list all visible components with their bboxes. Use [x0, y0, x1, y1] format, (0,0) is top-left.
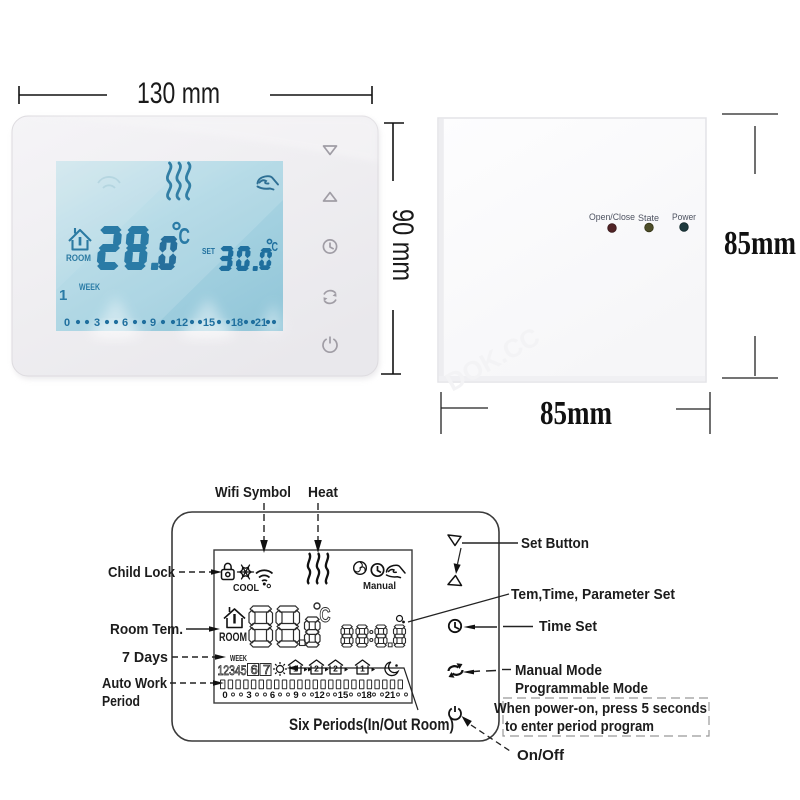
svg-text:State: State [638, 213, 659, 224]
svg-text:3: 3 [94, 317, 100, 329]
svg-text:6: 6 [251, 662, 258, 677]
svg-text:7: 7 [263, 662, 270, 677]
svg-text:15: 15 [338, 690, 349, 701]
svg-text:Manual: Manual [363, 580, 396, 592]
svg-text:C: C [320, 604, 331, 627]
svg-text:0: 0 [222, 690, 227, 701]
svg-text:Heat: Heat [308, 484, 338, 501]
svg-text:SET: SET [202, 247, 215, 256]
svg-text:130 mm: 130 mm [137, 77, 220, 110]
svg-text:Programmable Mode: Programmable Mode [515, 680, 648, 697]
svg-text:ROOM: ROOM [66, 253, 91, 264]
svg-text:6: 6 [122, 317, 128, 329]
svg-text:9: 9 [150, 317, 156, 329]
svg-text:On/Off: On/Off [517, 747, 565, 764]
svg-text:Six Periods(In/Out Room): Six Periods(In/Out Room) [289, 716, 454, 734]
svg-text:1: 1 [360, 664, 365, 674]
svg-text:Time Set: Time Set [539, 618, 597, 635]
svg-text:1: 1 [59, 287, 67, 304]
svg-text:6: 6 [270, 690, 275, 701]
svg-text:18: 18 [361, 690, 372, 701]
svg-text:90 mm: 90 mm [386, 209, 419, 281]
svg-text:12345: 12345 [218, 662, 247, 678]
svg-text:COOL: COOL [233, 582, 259, 594]
svg-text:9: 9 [293, 690, 298, 701]
svg-text:WEEK: WEEK [79, 282, 100, 292]
svg-text:Set Button: Set Button [521, 535, 589, 552]
svg-text:Power: Power [672, 212, 696, 223]
svg-text:7 Days: 7 Days [122, 649, 168, 666]
svg-text:21: 21 [385, 690, 396, 701]
svg-text:C: C [179, 223, 191, 249]
svg-text:0: 0 [64, 317, 70, 329]
svg-text:Manual Mode: Manual Mode [515, 662, 602, 679]
svg-text:Auto Work: Auto Work [102, 675, 168, 692]
svg-text:21: 21 [255, 317, 267, 329]
svg-text:When power-on, press 5 seconds: When power-on, press 5 seconds [494, 700, 707, 717]
svg-text:18: 18 [231, 317, 243, 329]
svg-text:Wifi Symbol: Wifi Symbol [215, 484, 291, 501]
svg-text:2: 2 [333, 664, 338, 674]
svg-text:Period: Period [102, 693, 140, 710]
svg-text:12: 12 [314, 690, 325, 701]
svg-text:C: C [272, 239, 279, 254]
svg-text:12: 12 [176, 317, 188, 329]
svg-text:3: 3 [246, 690, 251, 701]
svg-text:ROOM: ROOM [219, 632, 247, 644]
svg-text:Open/Close: Open/Close [589, 212, 635, 223]
svg-text:Room Tem.: Room Tem. [110, 621, 183, 638]
svg-text:2: 2 [314, 664, 319, 674]
svg-text:Tem,Time, Parameter Set: Tem,Time, Parameter Set [511, 586, 675, 603]
svg-text:85mm: 85mm [540, 395, 612, 432]
svg-text:Child Lock: Child Lock [108, 564, 176, 581]
svg-text:85mm: 85mm [724, 225, 796, 262]
svg-text:15: 15 [203, 317, 215, 329]
svg-text:to enter period program: to enter period program [505, 718, 654, 735]
svg-text:1: 1 [293, 664, 298, 674]
